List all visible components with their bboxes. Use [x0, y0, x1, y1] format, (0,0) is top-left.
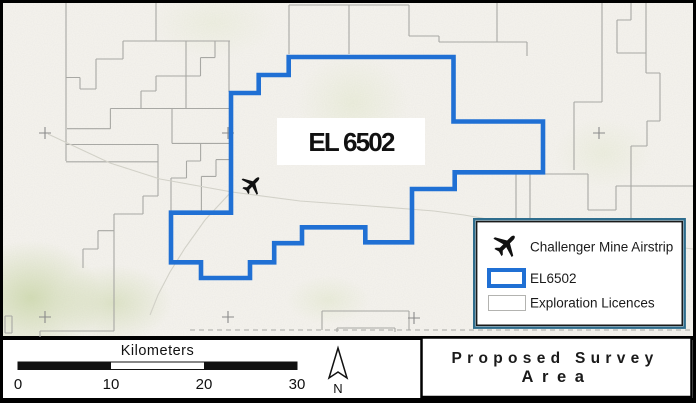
- svg-text:10: 10: [103, 376, 120, 393]
- svg-text:EL 6502: EL 6502: [308, 127, 395, 157]
- svg-text:N: N: [333, 381, 342, 396]
- svg-text:20: 20: [196, 376, 213, 393]
- svg-text:Proposed Survey: Proposed Survey: [452, 350, 659, 367]
- svg-text:Challenger Mine Airstrip: Challenger Mine Airstrip: [530, 240, 673, 255]
- svg-text:Exploration Licences: Exploration Licences: [530, 296, 655, 311]
- svg-text:Kilometers: Kilometers: [121, 343, 195, 359]
- svg-text:Area: Area: [521, 368, 592, 386]
- svg-text:EL6502: EL6502: [530, 271, 577, 286]
- svg-text:30: 30: [289, 376, 306, 393]
- svg-text:0: 0: [14, 376, 22, 393]
